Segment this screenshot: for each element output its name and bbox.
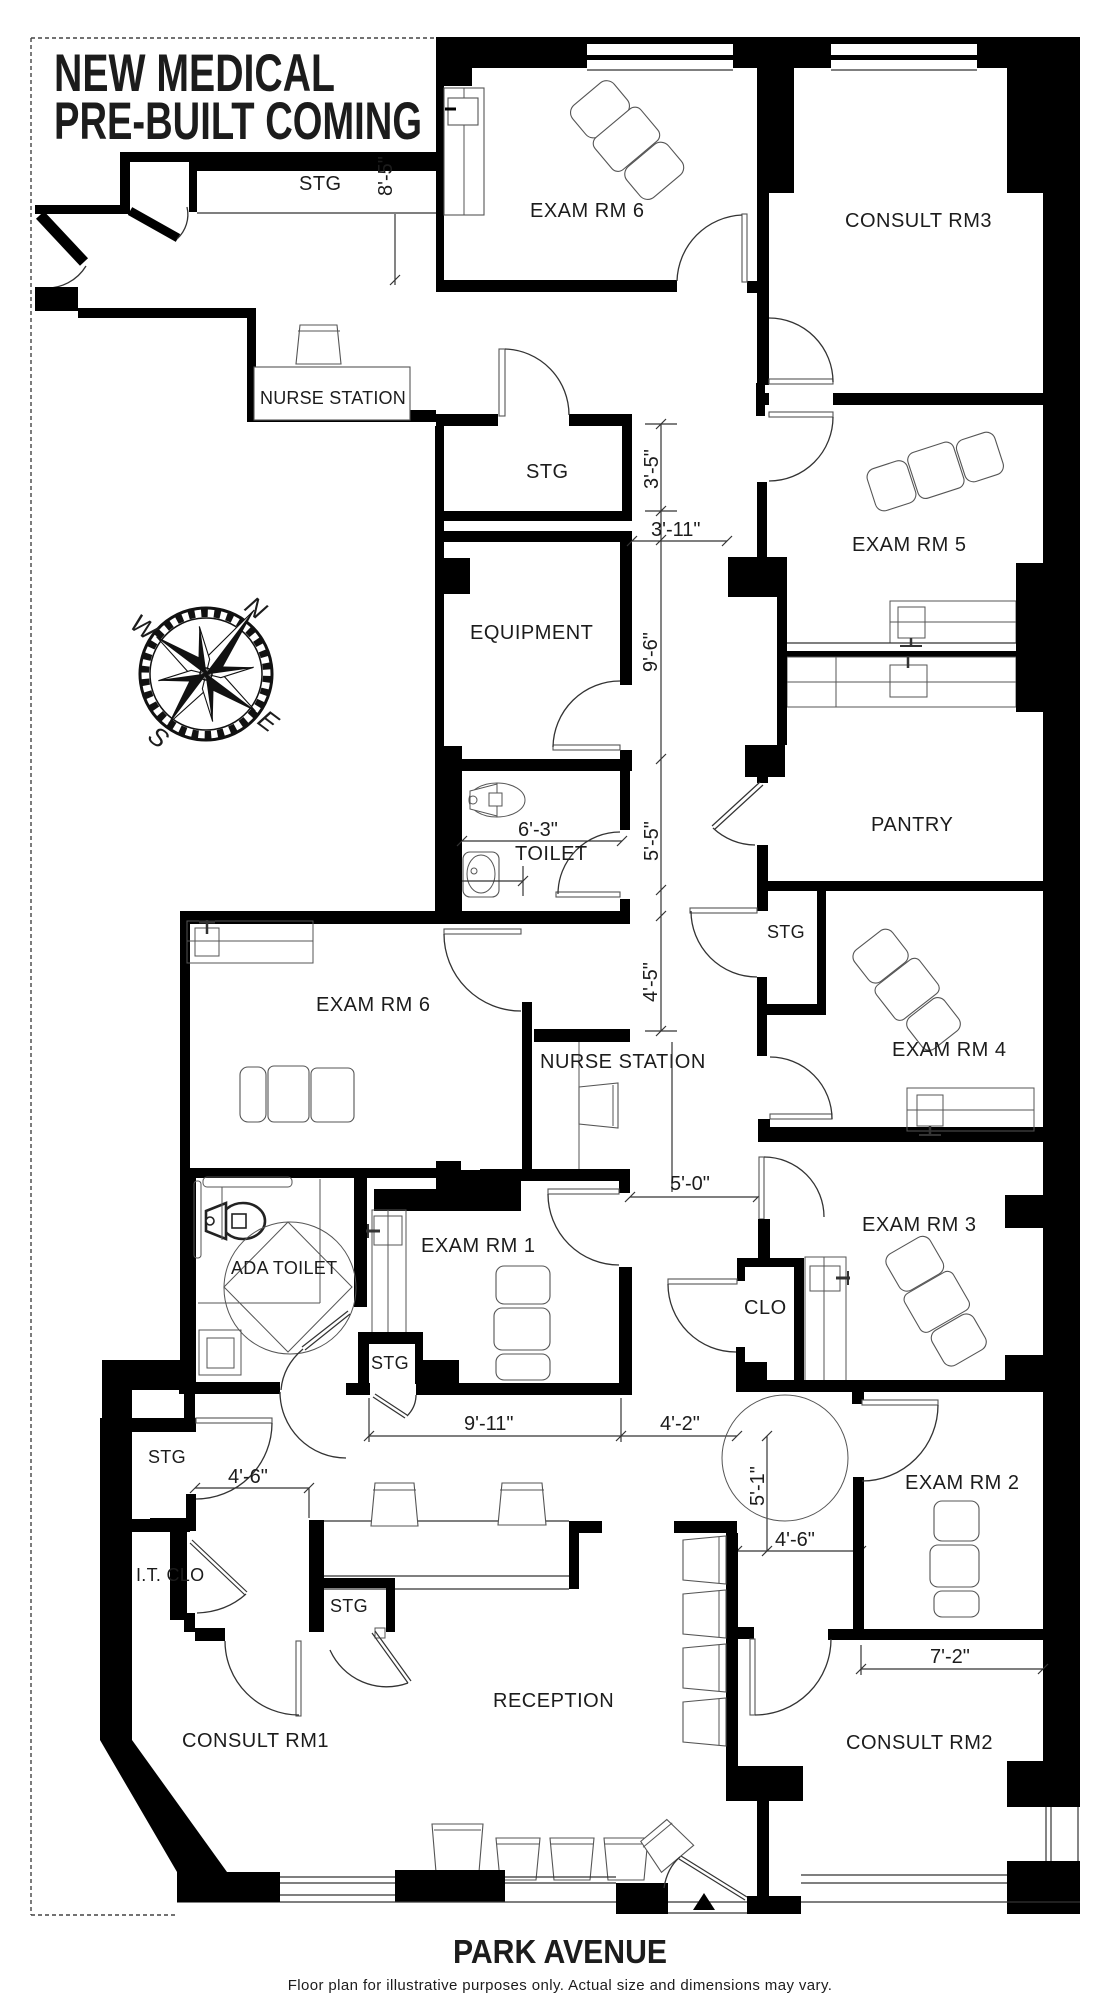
svg-text:NURSE STATION: NURSE STATION — [260, 388, 406, 408]
svg-text:CONSULT RM2: CONSULT RM2 — [846, 1732, 993, 1754]
svg-text:EXAM RM 5: EXAM RM 5 — [852, 534, 967, 556]
svg-text:8'-5": 8'-5" — [375, 156, 397, 196]
svg-text:STG: STG — [767, 922, 805, 942]
svg-text:PRE-BUILT COMING: PRE-BUILT COMING — [54, 92, 422, 151]
svg-text:CONSULT RM3: CONSULT RM3 — [845, 210, 992, 232]
svg-text:CONSULT RM1: CONSULT RM1 — [182, 1730, 329, 1752]
svg-text:9'-6": 9'-6" — [640, 632, 662, 672]
svg-text:NURSE STATION: NURSE STATION — [540, 1051, 706, 1073]
svg-text:EQUIPMENT: EQUIPMENT — [470, 622, 593, 644]
svg-text:EXAM RM 3: EXAM RM 3 — [862, 1214, 977, 1236]
svg-text:CLO: CLO — [744, 1297, 787, 1319]
svg-text:3'-11": 3'-11" — [651, 519, 700, 541]
svg-text:STG: STG — [371, 1353, 409, 1373]
svg-text:5'-1": 5'-1" — [747, 1466, 769, 1506]
svg-text:PANTRY: PANTRY — [871, 814, 953, 836]
svg-text:EXAM RM 4: EXAM RM 4 — [892, 1039, 1007, 1061]
svg-text:3'-5": 3'-5" — [641, 449, 663, 489]
svg-text:EXAM RM 2: EXAM RM 2 — [905, 1472, 1020, 1494]
svg-text:EXAM RM 6: EXAM RM 6 — [530, 200, 645, 222]
svg-text:STG: STG — [148, 1447, 186, 1467]
svg-text:4'-2": 4'-2" — [660, 1413, 700, 1435]
svg-text:4'-6": 4'-6" — [775, 1529, 815, 1551]
svg-text:ADA TOILET: ADA TOILET — [231, 1258, 337, 1278]
svg-text:I.T. CLO: I.T. CLO — [136, 1565, 204, 1585]
svg-text:EXAM RM 1: EXAM RM 1 — [421, 1235, 536, 1257]
svg-text:EXAM RM 6: EXAM RM 6 — [316, 994, 431, 1016]
svg-text:STG: STG — [330, 1596, 368, 1616]
svg-text:4'-5": 4'-5" — [640, 962, 662, 1002]
svg-text:STG: STG — [299, 173, 342, 195]
svg-text:PARK AVENUE: PARK AVENUE — [453, 1933, 667, 1970]
svg-text:5'-5": 5'-5" — [641, 821, 663, 861]
svg-text:TOILET: TOILET — [515, 843, 588, 865]
svg-text:7'-2": 7'-2" — [930, 1646, 970, 1668]
svg-text:4'-6": 4'-6" — [228, 1466, 268, 1488]
svg-text:STG: STG — [526, 461, 569, 483]
svg-text:9'-11": 9'-11" — [464, 1413, 513, 1435]
svg-text:6'-3": 6'-3" — [518, 819, 558, 841]
svg-text:RECEPTION: RECEPTION — [493, 1690, 614, 1712]
svg-text:Floor plan for illustrative pu: Floor plan for illustrative purposes onl… — [288, 1977, 833, 1994]
svg-text:5'-0": 5'-0" — [670, 1173, 710, 1195]
